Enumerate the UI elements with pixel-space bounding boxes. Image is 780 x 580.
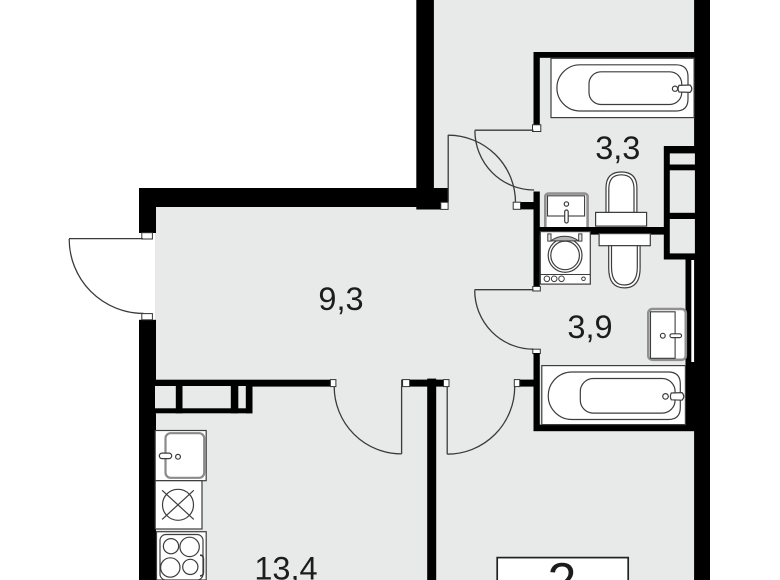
svg-text:9,3: 9,3: [318, 281, 363, 317]
svg-text:2: 2: [548, 553, 577, 580]
svg-text:3,9: 3,9: [567, 309, 612, 345]
svg-text:13,4: 13,4: [254, 551, 317, 580]
svg-text:3,3: 3,3: [595, 130, 640, 166]
